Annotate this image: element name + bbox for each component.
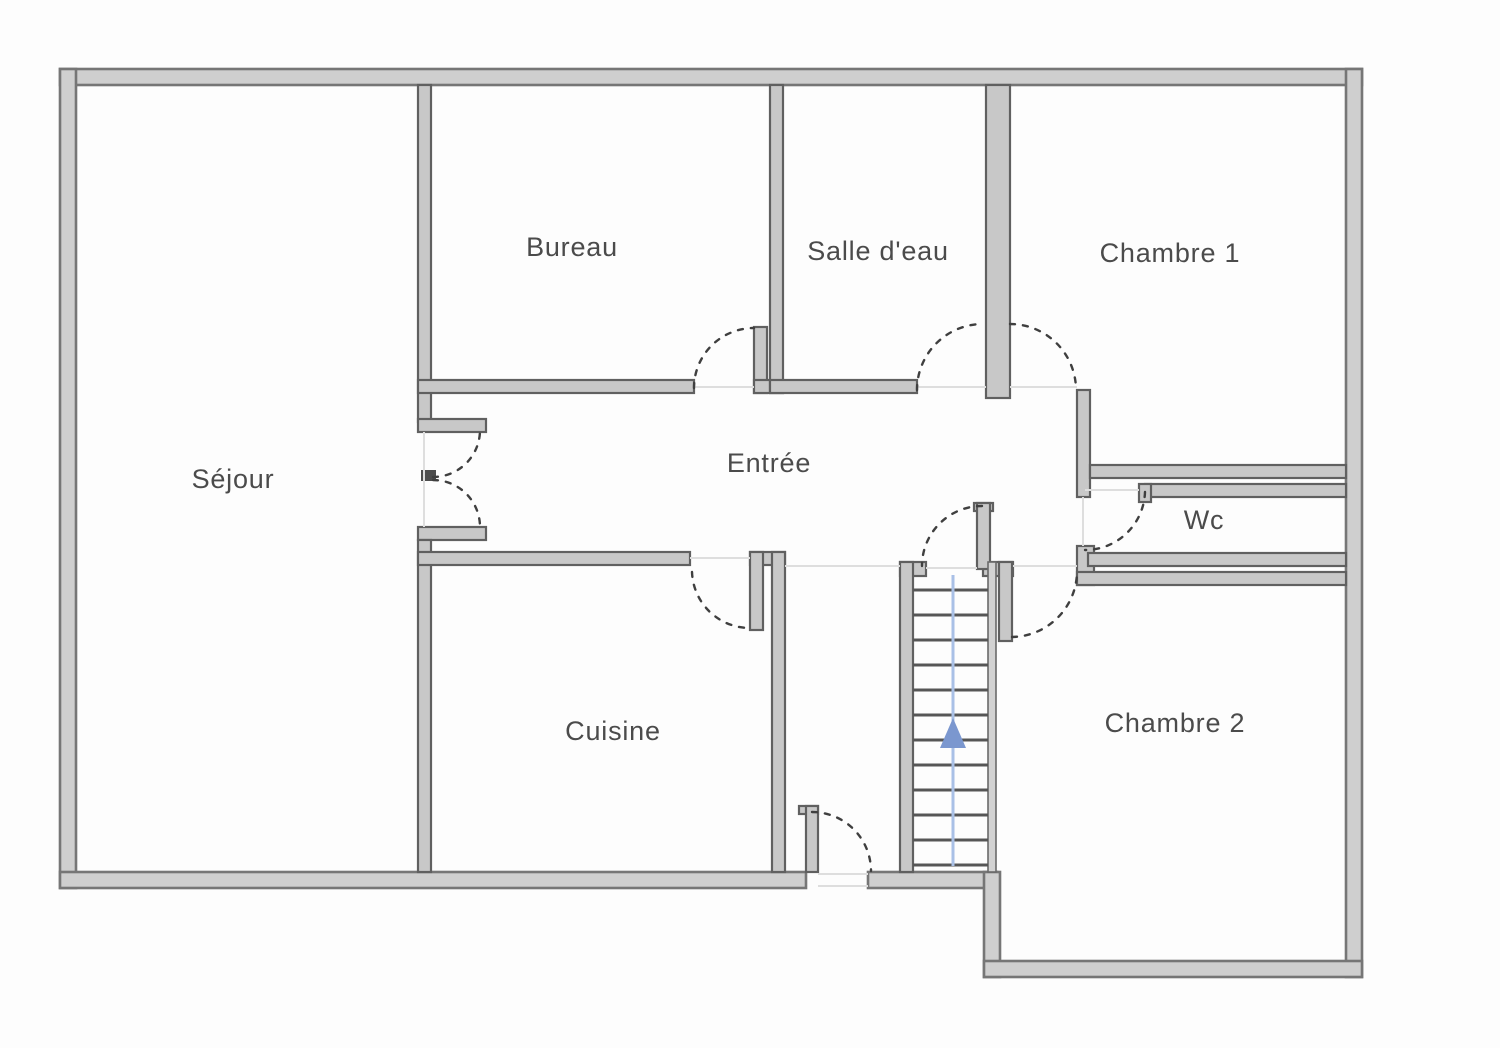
room-label-wc: Wc [1184,505,1225,535]
wall-entree-stair-stub [977,503,990,569]
room-label-bureau: Bureau [526,232,618,262]
wall-sejour-south-segment [418,540,431,872]
wall-stair-right-stub [999,562,1012,641]
wall-sejour-door-stub-bottom [418,527,486,540]
door-arc-stair-top [922,506,982,566]
room-label-chambre1: Chambre 1 [1100,238,1241,268]
wall-stair-left [900,562,913,872]
room-label-salledeau: Salle d'eau [807,236,949,266]
room-label-cuisine: Cuisine [565,716,661,746]
room-label-entree: Entrée [727,448,811,478]
door-arc-cuisine [692,572,750,628]
wall-cuisine-door-jamb [750,552,763,630]
wall-cuisine-top [418,552,690,565]
room-label-chambre2: Chambre 2 [1105,708,1246,738]
wall-chambre1-door-corner [1077,390,1090,497]
wall-wc-bottom [1088,553,1346,566]
door-arc-chambre1 [1010,324,1076,390]
wall-exterior-left [60,69,76,888]
door-arc-chambre2 [1012,571,1077,637]
wall-bureau-salledeau-divider [770,85,783,393]
wall-exit-door-jamb [806,806,818,872]
wall-wc-top [1145,484,1346,497]
wall-exterior-bottom-west [60,872,806,888]
wall-bureau-bottom [418,380,694,393]
wall-exterior-right [1346,69,1362,977]
wall-chambre1-bottom [1090,465,1346,478]
wall-exterior-extension-bottom [984,961,1362,977]
door-arc-exit [812,812,871,871]
interior-walls [418,85,1346,872]
staircase [913,562,996,872]
room-label-sejour: Séjour [192,464,275,494]
wall-sejour-north-segment [418,85,431,422]
wall-sejour-door-stub-top [418,419,486,432]
door-arc-salledeau [917,324,983,390]
floor-plan-page: Séjour Bureau Salle d'eau Chambre 1 Entr… [0,0,1500,1048]
wall-cuisine-right [772,552,785,872]
floor-plan-drawing: Séjour Bureau Salle d'eau Chambre 1 Entr… [0,0,1500,1048]
wall-exterior-top [60,69,1362,85]
door-arc-bureau [694,328,754,388]
door-arc-wc [1085,492,1145,550]
wall-chambre2-top [1077,572,1346,585]
exterior-walls [60,69,1362,977]
stair-right-rail [988,562,996,872]
stairs-up-arrow-icon [940,718,966,748]
door-arc-sejour-bottom-leaf [433,480,480,527]
door-arc-sejour-top-leaf [433,430,480,477]
wall-exterior-bottom-center [868,872,997,888]
door-arcs [433,324,1145,871]
wall-salledeau-bottom [770,380,917,393]
wall-salledeau-chambre1-divider [986,85,1010,398]
